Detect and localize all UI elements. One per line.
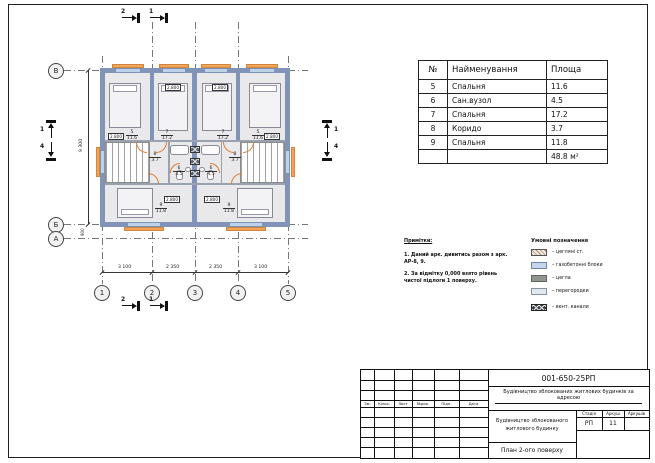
tb-line — [361, 427, 488, 428]
sheet-number: 11 — [602, 417, 624, 430]
cell-name: Спальня — [448, 80, 547, 94]
cell-area: 4.5 — [547, 94, 608, 108]
room-tag-bedroom7-left: 717.2 — [158, 130, 176, 141]
cell-area: 11.8 — [547, 136, 608, 150]
project-name: Будівництво зблокованих житлових будинкі… — [491, 386, 646, 403]
section-label: 2 — [121, 8, 125, 15]
room-tag-bath-left: 64.5 — [170, 166, 188, 177]
section-bar — [322, 158, 332, 161]
tb-line — [361, 447, 488, 448]
section-mark — [51, 127, 52, 138]
section-label: 1 — [334, 126, 338, 133]
drawing-sheet: 511.6 717.2 83.7 64.5 911.8 511.6 717.2 … — [0, 0, 655, 463]
bathtub — [170, 145, 189, 155]
section-bar — [165, 301, 168, 311]
cell-empty — [419, 150, 448, 164]
cell-num: 9 — [419, 136, 448, 150]
legend-block: Умовні позначення – цегляні ст. – газобе… — [531, 238, 631, 317]
section-bar — [165, 13, 168, 23]
table-row: 7 Спальня 17.2 — [419, 108, 608, 122]
legend-swatch-light — [531, 288, 547, 295]
dim-text-vertical: 9 300 — [79, 139, 84, 152]
tb-line — [361, 437, 488, 438]
bed-pillow — [241, 209, 269, 215]
wall-right — [285, 68, 290, 227]
stage-label: Стадія — [576, 410, 602, 417]
legend-label: – цегляні ст. — [552, 250, 584, 255]
window — [162, 68, 186, 73]
window — [285, 150, 290, 174]
dimension-line-left — [88, 70, 89, 224]
cell-num: 6 — [419, 94, 448, 108]
cell-empty — [448, 150, 547, 164]
legend-item: – цегла — [531, 275, 631, 282]
window — [249, 68, 275, 73]
tb-line — [459, 370, 460, 458]
wall-divider-right — [236, 73, 240, 142]
section-label: 1 — [149, 8, 153, 15]
wall-divider-left — [150, 73, 154, 142]
cell-name: Коридо — [448, 122, 547, 136]
bed-pillow — [253, 85, 277, 92]
cell-num: 7 — [419, 108, 448, 122]
tb-col-lyst: Лист — [394, 400, 412, 407]
legend-label: – газобетонні блоки — [552, 263, 603, 268]
section-bar — [137, 13, 140, 23]
total-area: 48.8 м² — [547, 150, 608, 164]
stage-value: РП — [576, 417, 602, 430]
room-tag-corridor-left: 83.7 — [146, 152, 164, 163]
section-bar — [46, 158, 56, 161]
room-tag-bath-right: 64.5 — [202, 166, 220, 177]
cell-name: Сан.вузол — [448, 94, 547, 108]
elevation-mark: 2.800 — [164, 196, 180, 203]
vent-shaft — [190, 158, 200, 165]
room-tag-bedroom7-right: 717.2 — [214, 130, 232, 141]
note-line: 1. Даний арк. дивитись разом з арк. АР-8… — [404, 252, 508, 266]
sill — [246, 64, 278, 68]
legend-label: – цегла — [552, 276, 571, 281]
tb-line — [412, 370, 413, 458]
table-header-row: № Найменування Площа — [419, 61, 608, 80]
tb-line — [361, 417, 488, 418]
sill — [201, 64, 231, 68]
legend-title: Умовні позначення — [531, 238, 631, 244]
cell-name: Спальня — [448, 136, 547, 150]
bed-pillow — [113, 85, 137, 92]
sill — [291, 147, 295, 177]
axis-circle-5: 5 — [280, 285, 296, 301]
title-block: Зм. Кільк. Лист №док. Підп. Дата 001-650… — [360, 369, 650, 459]
sill — [112, 64, 144, 68]
legend-item: – перегородки — [531, 288, 631, 295]
cell-num: 8 — [419, 122, 448, 136]
section-label: 4 — [334, 143, 338, 150]
sheet-label: Аркуш — [602, 410, 624, 417]
room-tag-corridor-right: 83.7 — [226, 152, 244, 163]
legend-swatch-brick-hatch — [531, 249, 547, 256]
cell-name: Спальня — [448, 108, 547, 122]
note-line: 2. За відмітку 0,000 взято рівень чистої… — [404, 271, 508, 285]
room-tag-bedroom9-right: 911.8 — [220, 203, 238, 214]
room-tag-bedroom9-left: 911.8 — [152, 203, 170, 214]
notes-block: Примітки: 1. Даний арк. дивитись разом з… — [404, 238, 508, 291]
col-header-name: Найменування — [448, 61, 547, 80]
vent-shaft — [190, 170, 200, 177]
legend-item: – цегляні ст. — [531, 249, 631, 256]
tb-line — [394, 370, 395, 458]
elevation-mark: 2.800 — [204, 196, 220, 203]
tb-line — [361, 407, 488, 408]
tb-line — [434, 370, 435, 458]
legend-item: – вент. канали — [531, 304, 631, 311]
legend-swatch-crosshatch — [531, 304, 547, 311]
tb-col-data: Дата — [459, 400, 488, 407]
table-row: 9 Спальня 11.8 — [419, 136, 608, 150]
partition-mid-lower — [105, 183, 285, 185]
axis-circle-a: А — [48, 231, 64, 247]
sill — [226, 227, 266, 231]
section-mark — [327, 142, 328, 153]
tb-col-pidp: Підп. — [434, 400, 459, 407]
section-label: 1 — [149, 296, 153, 303]
section-mark — [51, 142, 52, 153]
section-bar — [137, 301, 140, 311]
table-row: 6 Сан.вузол 4.5 — [419, 94, 608, 108]
legend-swatch-blue-block — [531, 262, 547, 269]
elevation-mark: 2.800 — [212, 84, 228, 91]
document-code: 001-650-25РП — [488, 370, 649, 386]
sheet-title: План 2-ого поверху — [488, 442, 576, 458]
elevation-mark: 2.800 — [108, 133, 124, 140]
sheets-label: Аркушів — [624, 410, 649, 417]
legend-label: – перегородки — [552, 289, 589, 294]
axis-circle-3: 3 — [187, 285, 203, 301]
legend-label: – вент. канали — [552, 305, 589, 310]
sill — [96, 147, 100, 177]
table-total-row: 48.8 м² — [419, 150, 608, 164]
window — [204, 68, 228, 73]
cell-area: 3.7 — [547, 122, 608, 136]
tb-col-kilk: Кільк. — [374, 400, 394, 407]
axis-circle-4: 4 — [230, 285, 246, 301]
partition-bath-right — [221, 142, 223, 184]
axis-line-a — [64, 238, 308, 239]
cell-num: 5 — [419, 80, 448, 94]
tb-line — [495, 403, 642, 404]
section-label: 1 — [40, 126, 44, 133]
axis-circle-1: 1 — [94, 285, 110, 301]
section-label: 2 — [121, 296, 125, 303]
dim-text: 2 350 — [209, 265, 222, 270]
room-schedule-table: № Найменування Площа 5 Спальня 11.6 6 Са… — [418, 60, 608, 164]
legend-item: – газобетонні блоки — [531, 262, 631, 269]
sill — [124, 227, 164, 231]
sill — [159, 64, 189, 68]
elevation-mark: 2.800 — [264, 133, 280, 140]
dim-text: 3 100 — [254, 265, 267, 270]
tb-line — [361, 390, 488, 391]
table-row: 8 Коридо 3.7 — [419, 122, 608, 136]
notes-title: Примітки: — [404, 238, 508, 245]
vent-shaft — [190, 146, 200, 153]
tb-line — [361, 380, 488, 381]
tb-col-zm: Зм. — [361, 400, 374, 407]
dim-text-vertical-small: 900 — [80, 228, 85, 236]
tb-col-doc: №док. — [412, 400, 434, 407]
bathtub — [201, 145, 220, 155]
dim-text: 3 100 — [118, 265, 131, 270]
section-mark — [327, 127, 328, 138]
window — [115, 68, 141, 73]
object-name: Будівництво зблокованого житлового будин… — [490, 410, 574, 442]
col-header-number: № — [419, 61, 448, 80]
bed-pillow — [121, 209, 149, 215]
room-tag-bedroom5-left: 511.6 — [123, 130, 141, 141]
axis-circle-v: В — [48, 63, 64, 79]
col-header-area: Площа — [547, 61, 608, 80]
tb-line — [374, 370, 375, 458]
cell-area: 17.2 — [547, 108, 608, 122]
legend-swatch-gray — [531, 275, 547, 282]
section-label: 4 — [40, 143, 44, 150]
elevation-mark: 2.800 — [165, 84, 181, 91]
tb-line — [576, 430, 649, 431]
cell-area: 11.6 — [547, 80, 608, 94]
table-row: 5 Спальня 11.6 — [419, 80, 608, 94]
dim-text: 2 350 — [166, 265, 179, 270]
